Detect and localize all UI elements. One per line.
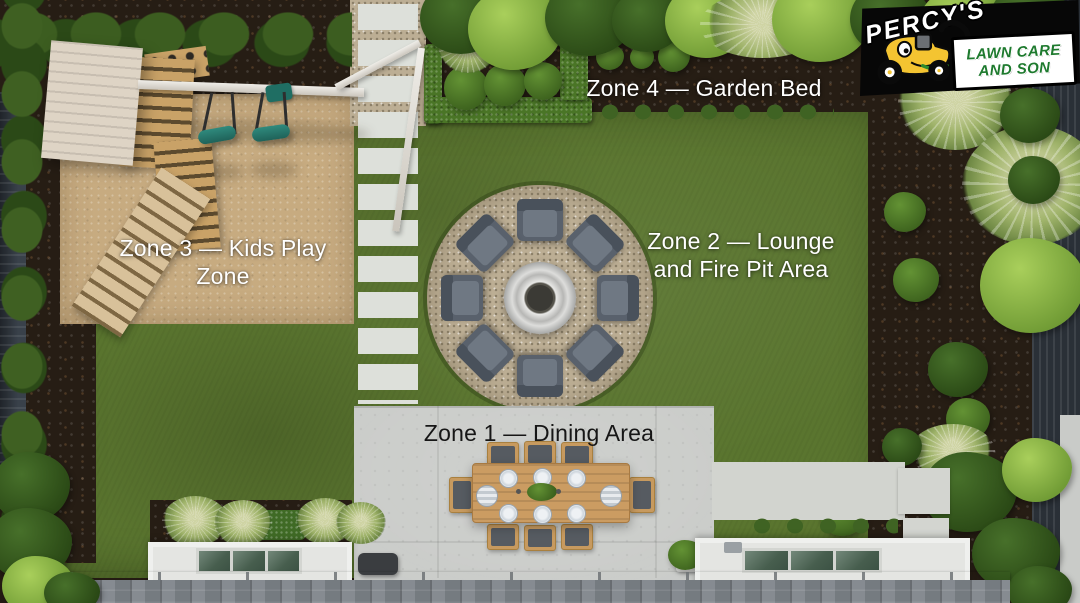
zone-2-label-line1: Zone 2 — Lounge (631, 227, 851, 255)
zone-3-label-text: Zone 3 — Kids Play Zone (120, 235, 327, 289)
zone-1-label: Zone 1 — Dining Area (399, 419, 679, 447)
ornamental-grass (214, 500, 272, 546)
stepping-stone-path (358, 4, 418, 404)
dining-chair (524, 525, 556, 551)
plate (567, 469, 586, 488)
lounge-chair (517, 355, 563, 397)
playset-tower-roof (41, 40, 143, 166)
zone-3-label: Zone 3 — Kids Play Zone (93, 234, 353, 290)
plate (499, 469, 518, 488)
bush (980, 238, 1080, 333)
plate (499, 504, 518, 523)
platter (600, 485, 622, 507)
zone-1-label-text: Zone 1 — Dining Area (424, 420, 654, 446)
lounge-chair (454, 212, 516, 274)
fire-pit-patio (427, 185, 653, 411)
platter (476, 485, 498, 507)
swing-shadow (250, 162, 298, 178)
ornamental-grass (336, 502, 386, 544)
dining-chair (561, 524, 593, 550)
backyard-aerial-plan: Zone 4 — Garden Bed Zone 3 — Kids Play Z… (0, 0, 1080, 603)
swing-bracket (265, 82, 293, 102)
table-item (516, 489, 521, 494)
zone-4-label: Zone 4 — Garden Bed (584, 74, 824, 102)
skylight-pane (268, 551, 299, 571)
zone-2-label: Zone 2 — Lounge and Fire Pit Area (631, 227, 851, 283)
lounge-chair (441, 275, 483, 321)
skylight-pane (233, 551, 264, 571)
zone-4-label-text: Zone 4 — Garden Bed (586, 75, 821, 101)
fire-pit (504, 262, 576, 334)
roof-shingles (70, 580, 1010, 603)
logo-banner: LAWN CARE AND SON (951, 31, 1078, 91)
lounge-chair (564, 212, 626, 274)
skylight-pane (745, 551, 788, 570)
zone-2-label-line2: and Fire Pit Area (631, 255, 851, 283)
skylight (742, 548, 882, 573)
lounge-chair (517, 199, 563, 241)
paver-slab (898, 468, 950, 514)
skylight-pane (199, 551, 230, 571)
lounge-chair (454, 322, 516, 384)
lounge-chair (564, 322, 626, 384)
table-item (556, 489, 561, 494)
garden-bush-row (594, 98, 834, 128)
plate (533, 505, 552, 524)
plate (567, 504, 586, 523)
dining-chair (629, 477, 655, 513)
skylight (196, 548, 302, 574)
roof-vent (724, 542, 742, 553)
logo: PERCY'S LAWN CARE AND SON (860, 0, 1080, 100)
skylight-pane (836, 551, 879, 570)
skylight-pane (791, 551, 834, 570)
dining-chair (487, 524, 519, 550)
